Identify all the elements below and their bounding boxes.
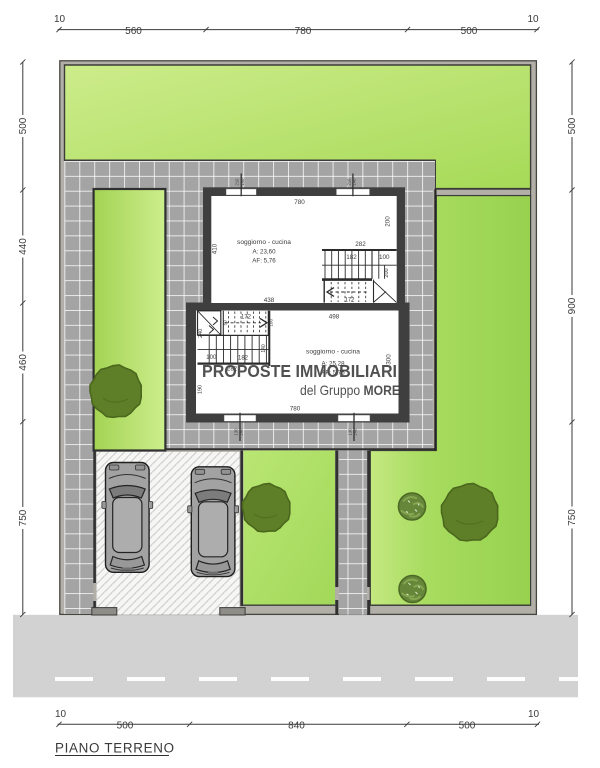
svg-text:780: 780 (290, 406, 301, 413)
svg-text:780: 780 (294, 199, 305, 206)
svg-text:500: 500 (117, 721, 134, 732)
svg-text:500: 500 (567, 117, 578, 134)
svg-text:240: 240 (198, 329, 204, 338)
svg-text:100: 100 (206, 355, 217, 361)
svg-text:840: 840 (288, 721, 305, 732)
svg-text:460: 460 (18, 354, 29, 371)
svg-text:172: 172 (344, 298, 355, 304)
svg-text:410: 410 (212, 243, 219, 254)
svg-text:100: 100 (379, 254, 390, 261)
svg-text:10: 10 (55, 709, 67, 720)
svg-text:140: 140 (352, 178, 357, 186)
svg-text:PROPOSTE IMMOBILIARI: PROPOSTE IMMOBILIARI (202, 361, 397, 381)
svg-text:AF: 5,76: AF: 5,76 (252, 258, 276, 265)
svg-text:10: 10 (527, 14, 539, 25)
svg-text:100: 100 (269, 319, 274, 327)
svg-text:190: 190 (198, 385, 204, 394)
svg-text:500: 500 (461, 26, 478, 37)
svg-text:soggiorno - cucina: soggiorno - cucina (237, 239, 291, 246)
svg-text:200: 200 (384, 216, 391, 227)
svg-text:del Gruppo MORE: del Gruppo MORE (300, 383, 400, 398)
svg-text:soggiorno - cucina: soggiorno - cucina (306, 349, 360, 356)
svg-text:140: 140 (240, 178, 245, 186)
svg-text:182: 182 (346, 254, 357, 261)
svg-text:A: 23,60: A: 23,60 (252, 248, 276, 255)
svg-text:172: 172 (241, 314, 252, 320)
svg-text:498: 498 (329, 314, 340, 321)
svg-text:900: 900 (567, 297, 578, 314)
svg-text:PIANO TERRENO: PIANO TERRENO (55, 741, 175, 756)
svg-text:500: 500 (459, 721, 476, 732)
svg-text:440: 440 (18, 238, 29, 255)
svg-text:240: 240 (353, 428, 358, 436)
svg-text:438: 438 (264, 297, 275, 304)
svg-text:10: 10 (54, 14, 66, 25)
svg-text:200: 200 (384, 268, 390, 277)
svg-text:10: 10 (528, 709, 540, 720)
svg-text:500: 500 (18, 117, 29, 134)
svg-text:50: 50 (223, 320, 228, 326)
svg-text:560: 560 (125, 26, 142, 37)
svg-text:282: 282 (355, 241, 366, 248)
svg-text:750: 750 (567, 509, 578, 526)
svg-text:240: 240 (239, 428, 244, 436)
svg-text:780: 780 (295, 26, 312, 37)
svg-text:140: 140 (261, 344, 267, 353)
svg-text:750: 750 (18, 509, 29, 526)
